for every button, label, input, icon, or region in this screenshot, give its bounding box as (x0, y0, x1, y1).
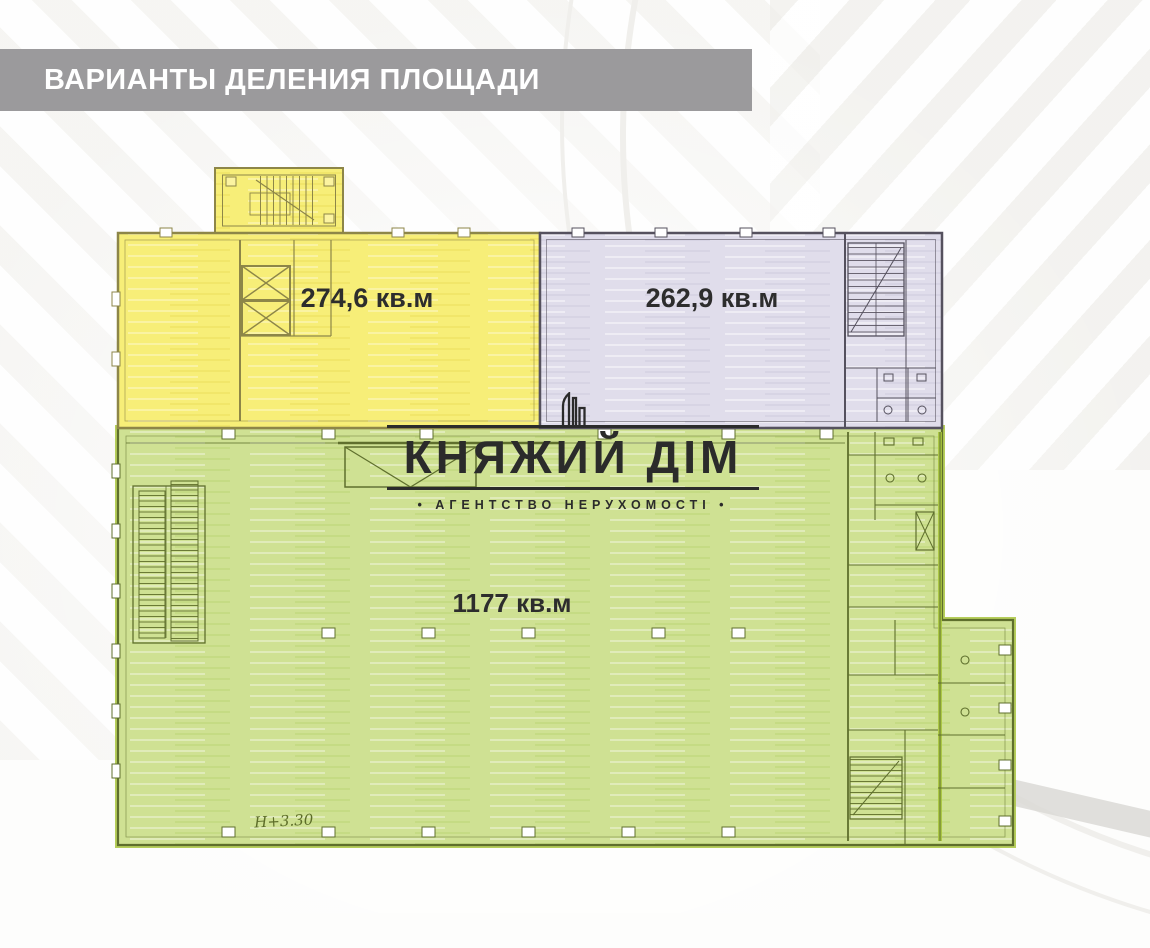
height-note: Н+3.30 (253, 810, 314, 831)
zone-green-label: 1177 кв.м (452, 588, 571, 618)
staircase-bottom-right (850, 757, 902, 819)
stairwell-top (215, 168, 343, 233)
logo-rule-bottom (387, 487, 759, 490)
page-title: ВАРИАНТЫ ДЕЛЕНИЯ ПЛОЩАДИ (0, 64, 540, 97)
flyer: { "header": { "title": "ВАРИАНТЫ ДЕЛЕНИЯ… (0, 0, 1150, 913)
header-bar: ВАРИАНТЫ ДЕЛЕНИЯ ПЛОЩАДИ (0, 49, 752, 111)
logo-tagline: • АГЕНТСТВО НЕРУХОМОСТІ • (383, 498, 763, 512)
staircase-right (848, 243, 904, 336)
zone-yellow: 274,6 кв.м (112, 168, 540, 428)
logo: КНЯЖИЙ ДІМ • АГЕНТСТВО НЕРУХОМОСТІ • (383, 392, 763, 512)
zone-purple-label: 262,9 кв.м (646, 283, 779, 313)
logo-name: КНЯЖИЙ ДІМ (383, 428, 763, 487)
logo-building-icon (558, 392, 588, 428)
zone-yellow-label: 274,6 кв.м (301, 283, 434, 313)
